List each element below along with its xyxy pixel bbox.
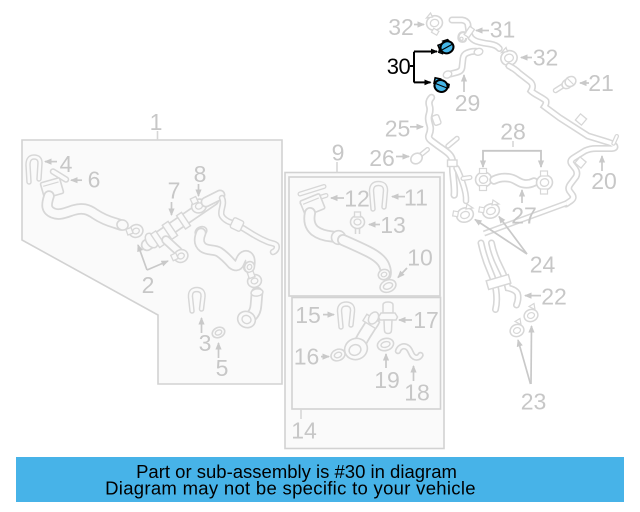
svg-text:32: 32 — [388, 14, 414, 40]
svg-text:1: 1 — [150, 109, 163, 135]
svg-text:11: 11 — [404, 185, 428, 211]
svg-text:9: 9 — [332, 140, 345, 166]
svg-text:17: 17 — [413, 307, 439, 333]
svg-text:31: 31 — [490, 16, 516, 42]
svg-text:3: 3 — [199, 330, 212, 356]
svg-text:19: 19 — [374, 367, 400, 393]
svg-text:5: 5 — [216, 355, 229, 381]
svg-text:13: 13 — [380, 212, 406, 238]
svg-text:2: 2 — [142, 272, 155, 298]
svg-text:27: 27 — [511, 203, 537, 229]
svg-text:8: 8 — [194, 161, 207, 187]
svg-text:Diagram may not be specific to: Diagram may not be specific to your vehi… — [105, 478, 476, 499]
svg-text:24: 24 — [530, 251, 556, 277]
svg-text:28: 28 — [500, 118, 526, 144]
svg-text:16: 16 — [294, 344, 320, 370]
svg-text:12: 12 — [344, 186, 370, 212]
svg-text:21: 21 — [588, 70, 614, 96]
svg-text:30: 30 — [387, 54, 411, 79]
svg-text:20: 20 — [591, 168, 617, 194]
svg-text:25: 25 — [385, 115, 411, 141]
svg-text:10: 10 — [407, 245, 433, 271]
svg-text:29: 29 — [455, 90, 481, 116]
svg-text:14: 14 — [291, 418, 317, 444]
svg-text:26: 26 — [369, 145, 395, 171]
svg-text:32: 32 — [533, 45, 559, 71]
svg-text:22: 22 — [541, 283, 567, 309]
svg-text:7: 7 — [168, 178, 181, 204]
svg-text:23: 23 — [521, 388, 547, 414]
svg-text:6: 6 — [88, 167, 101, 193]
svg-text:15: 15 — [295, 302, 321, 328]
svg-text:18: 18 — [404, 380, 430, 406]
